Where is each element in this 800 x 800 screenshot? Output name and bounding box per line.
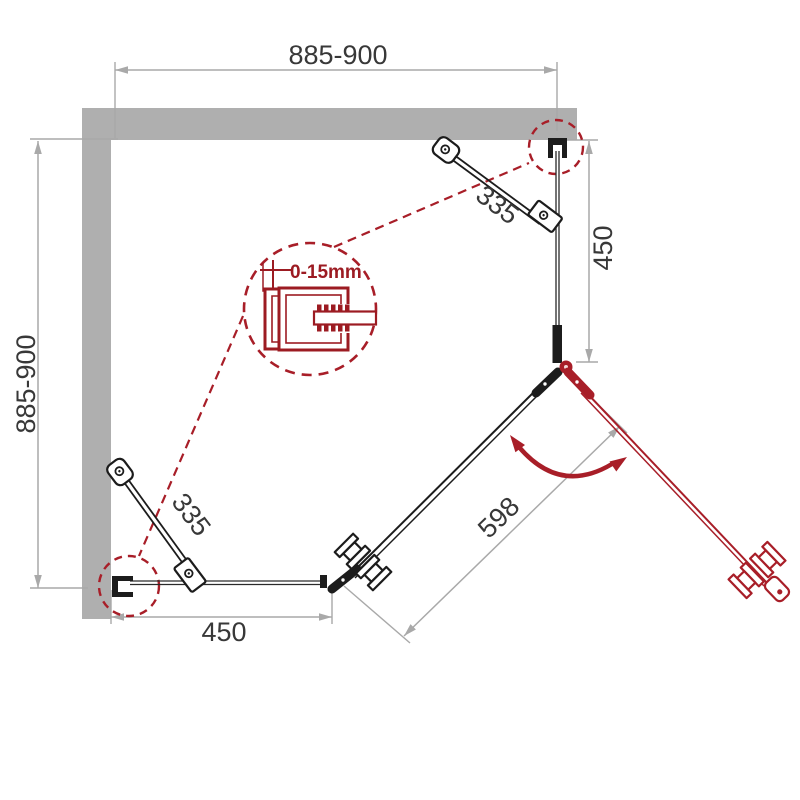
drawing-canvas: 885-900 885-900 450 450 335 335 598 0-15… (0, 0, 800, 800)
wall-bracket-top (548, 138, 567, 158)
support-bar-right-label: 335 (470, 179, 524, 230)
dimension-lines (38, 70, 620, 636)
door-open (568, 372, 791, 603)
wall-bracket-bottom (112, 576, 133, 597)
left-depth-label: 885-900 (11, 334, 41, 433)
bottom-panel-label: 450 (201, 617, 246, 647)
detail-callouts (99, 120, 583, 616)
walls (82, 108, 577, 619)
wall-top (82, 108, 577, 140)
door-hinge-plate (536, 372, 558, 393)
fixed-panel-right (553, 151, 563, 363)
door-hinge-plate (568, 372, 590, 395)
panel-end-profile (553, 325, 563, 363)
door-width-label: 598 (472, 491, 525, 544)
right-panel-label: 450 (588, 225, 618, 270)
door-closed (332, 372, 558, 589)
wall-left (82, 108, 111, 619)
shower-enclosure-diagram: 885-900 885-900 450 450 335 335 598 0-15… (0, 0, 800, 800)
profile-glass-slot (314, 312, 376, 325)
extension-lines (30, 62, 627, 643)
top-width-label: 885-900 (288, 40, 387, 70)
door-edge-cap (763, 575, 791, 603)
panel-end-profile (320, 575, 327, 588)
support-bar-glass-clamp (174, 558, 206, 593)
profile-adjustment-label: 0-15mm (290, 262, 362, 283)
support-bar-left-label: 335 (166, 488, 217, 542)
dimension-door-width (404, 426, 620, 636)
support-bar-glass-clamp (528, 200, 563, 232)
door-swing-arrow (510, 435, 627, 476)
